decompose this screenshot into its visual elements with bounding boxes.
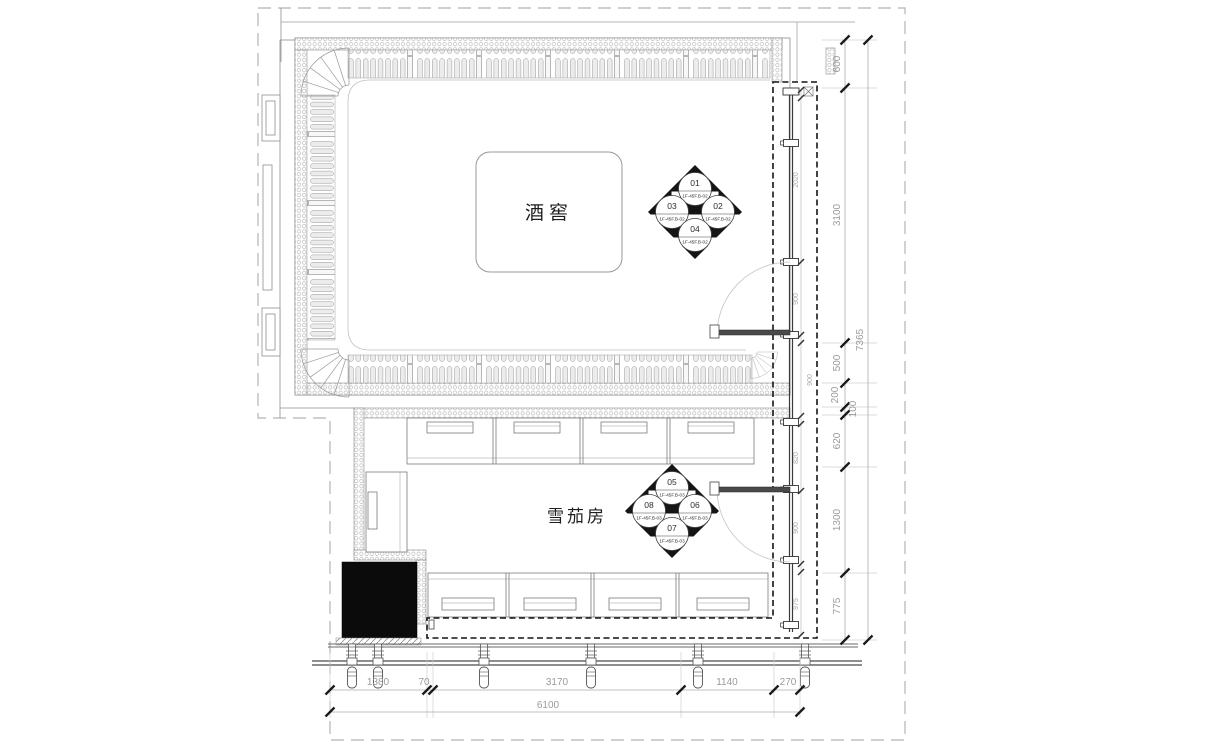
dim-label: 500 (832, 354, 843, 371)
dim-label: 200 (830, 386, 841, 403)
dim-label: 975 (793, 598, 800, 610)
dim-label: 100 (848, 400, 859, 417)
floor-plan-canvas: 酒窖 (0, 0, 1210, 750)
marker-num: 07 (667, 523, 677, 533)
dim-label: 3100 (832, 203, 843, 226)
marker-num: 08 (644, 500, 654, 510)
dim-total-label: 6100 (537, 700, 560, 711)
dim-label: 900 (793, 293, 800, 305)
wine-cellar-label: 酒窖 (525, 202, 573, 224)
dim-total-label: 7365 (855, 328, 866, 351)
dim-label: 1380 (367, 677, 390, 688)
cabinet-left (366, 472, 407, 552)
door-leaf (717, 487, 790, 492)
dim-label: 1300 (832, 508, 843, 531)
dim-label: 2020 (793, 172, 800, 188)
marker-ref: 1F-45F.B-03 (659, 539, 685, 544)
glass-mullion (781, 622, 799, 629)
marker-ref: 1F-45F.B-03 (682, 516, 708, 521)
dim-label: 900 (807, 374, 814, 386)
marker-ref: 1F-45F.B-02 (682, 194, 708, 199)
marker-ref: 1F-45F.B-03 (659, 493, 685, 498)
dim-label: 620 (832, 432, 843, 449)
marker-num: 05 (667, 477, 677, 487)
dim-label: 775 (832, 597, 843, 614)
dim-label: 900 (793, 522, 800, 534)
door-leaf (717, 330, 790, 335)
cabinet-row-upper (407, 418, 754, 464)
corner-bracket (429, 620, 434, 629)
xbox-detail (804, 87, 813, 96)
marker-ref: 1F-45F.B-03 (636, 516, 662, 521)
dim-label: 820 (793, 452, 800, 464)
glass-head-block (783, 88, 799, 95)
dim-label: 600 (832, 55, 843, 72)
marker-num: 04 (690, 224, 700, 234)
cabinet-row-lower (428, 573, 768, 617)
marker-num: 06 (690, 500, 700, 510)
glass-mullion (781, 557, 799, 564)
dim-label: 1140 (716, 677, 738, 688)
dim-label: 3170 (546, 677, 569, 688)
marker-num: 02 (713, 201, 723, 211)
marker-ref: 1F-45F.B-02 (659, 217, 685, 222)
dim-label: 70 (418, 677, 430, 688)
door-end-cap (710, 482, 719, 495)
dim-label: 270 (780, 677, 797, 688)
marker-ref: 1F-45F.B-02 (682, 240, 708, 245)
door-end-cap (710, 325, 719, 338)
marker-num: 01 (690, 178, 700, 188)
solid-column (342, 562, 417, 638)
glass-mullion (781, 140, 799, 147)
cigar-room-label: 雪茄房 (547, 507, 607, 526)
glass-mullion (781, 419, 799, 426)
marker-num: 03 (667, 201, 677, 211)
marker-ref: 1F-45F.B-02 (705, 217, 731, 222)
